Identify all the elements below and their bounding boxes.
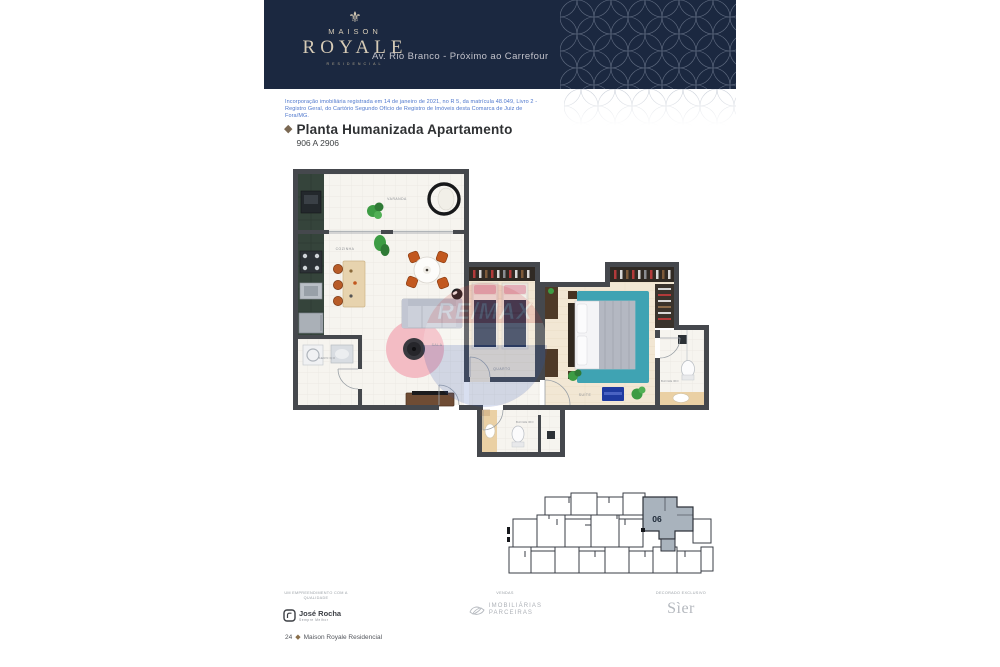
brochure-page: ⚜ MAISON ROYALE RESIDENCIAL Av. Rio Bran…	[0, 0, 1000, 667]
keyplan-outline	[509, 493, 713, 573]
page-footer-line: 24 ◆ Maison Royale Residencial	[285, 633, 382, 641]
kitchen-counter-strip	[298, 174, 324, 335]
highlighted-unit	[643, 497, 693, 539]
floor-plan-svg: VARANDA COZINHA SALA SERVIÇO QUARTO SUÍT…	[285, 163, 715, 463]
brand-line-residencial: RESIDENCIAL	[300, 62, 410, 66]
registration-note: Incorporação imobiliária registrada em 1…	[285, 99, 545, 120]
page-title: Planta Humanizada Apartamento	[296, 122, 512, 137]
footer-sales: VENDAS IMOBILIÁRIAS PARCEIRAS	[452, 591, 558, 618]
bar-stool	[333, 296, 342, 305]
geometric-pattern	[560, 0, 736, 89]
sales-caption: VENDAS	[452, 591, 558, 596]
footer-decor: DECORADO EXCLUSIVO Sìer	[643, 591, 719, 618]
diamond-icon: ◆	[295, 633, 300, 641]
sales-logo-line2: PARCEIRAS	[489, 610, 542, 618]
sales-logo: IMOBILIÁRIAS PARCEIRAS	[452, 603, 558, 618]
room-label-cozinha: COZINHA	[336, 247, 355, 251]
room-label-suite: SUÍTE	[579, 393, 592, 397]
developer-caption: UM EMPREENDIMENTO COM A QUALIDADE	[283, 591, 349, 600]
room-label-varanda: VARANDA	[387, 197, 407, 201]
shower-divider	[538, 415, 541, 452]
sales-logo-line1: IMOBILIÁRIAS	[489, 603, 542, 611]
page-number: 24	[285, 634, 292, 641]
decor-caption: DECORADO EXCLUSIVO	[643, 591, 719, 596]
toilet	[512, 426, 524, 442]
developer-logo-tagline: Sempre Melhor	[299, 618, 341, 622]
header-banner: ⚜ MAISON ROYALE RESIDENCIAL Av. Rio Bran…	[264, 0, 736, 89]
decor-logo: Sìer	[643, 600, 719, 618]
page-brand: Maison Royale Residencial	[304, 634, 382, 641]
developer-logo: José Rocha Sempre Melhor	[283, 609, 349, 622]
nightstand	[568, 291, 577, 299]
keyplan: 06	[505, 485, 717, 577]
section-title: ◆ Planta Humanizada Apartamento 906 A 29…	[284, 122, 513, 148]
developer-logo-name: José Rocha	[299, 610, 341, 618]
bathroom-sink	[485, 424, 495, 438]
partner-hands-icon	[468, 604, 486, 617]
room-label-banheiro-suite: BANHEIRO	[661, 379, 679, 383]
highlighted-unit-tail	[661, 539, 675, 551]
bathroom-sink	[673, 394, 689, 403]
jose-rocha-icon	[283, 609, 296, 622]
tv	[412, 391, 448, 395]
closet	[545, 349, 558, 377]
pattern-fadeout	[564, 89, 736, 129]
stove	[300, 251, 322, 273]
room-label-servico: SERVIÇO	[319, 356, 336, 360]
bar-stool	[333, 264, 342, 273]
keyplan-svg: 06	[505, 485, 717, 577]
shower-head	[547, 431, 555, 439]
fleur-de-lis-icon: ⚜	[300, 10, 410, 25]
unit-number: 06	[652, 514, 662, 524]
keyplan-marks	[507, 527, 510, 542]
footer-developer: UM EMPREENDIMENTO COM A QUALIDADE José R…	[283, 591, 349, 622]
diamond-bullet-icon: ◆	[284, 122, 292, 137]
header-tagline: Av. Rio Branco - Próximo ao Carrefour	[372, 51, 549, 62]
room-label-banheiro-social: BANHEIRO	[516, 420, 534, 424]
watermark-text: RE/MAX	[437, 298, 533, 324]
washer	[303, 345, 323, 365]
page-subtitle: 906 A 2906	[296, 138, 512, 148]
fridge	[299, 313, 323, 333]
bar-stool	[333, 280, 342, 289]
wardrobe	[469, 267, 535, 281]
floor-plan: VARANDA COZINHA SALA SERVIÇO QUARTO SUÍT…	[285, 163, 715, 463]
double-bed	[568, 301, 635, 369]
brand-line-maison: MAISON	[300, 27, 410, 36]
